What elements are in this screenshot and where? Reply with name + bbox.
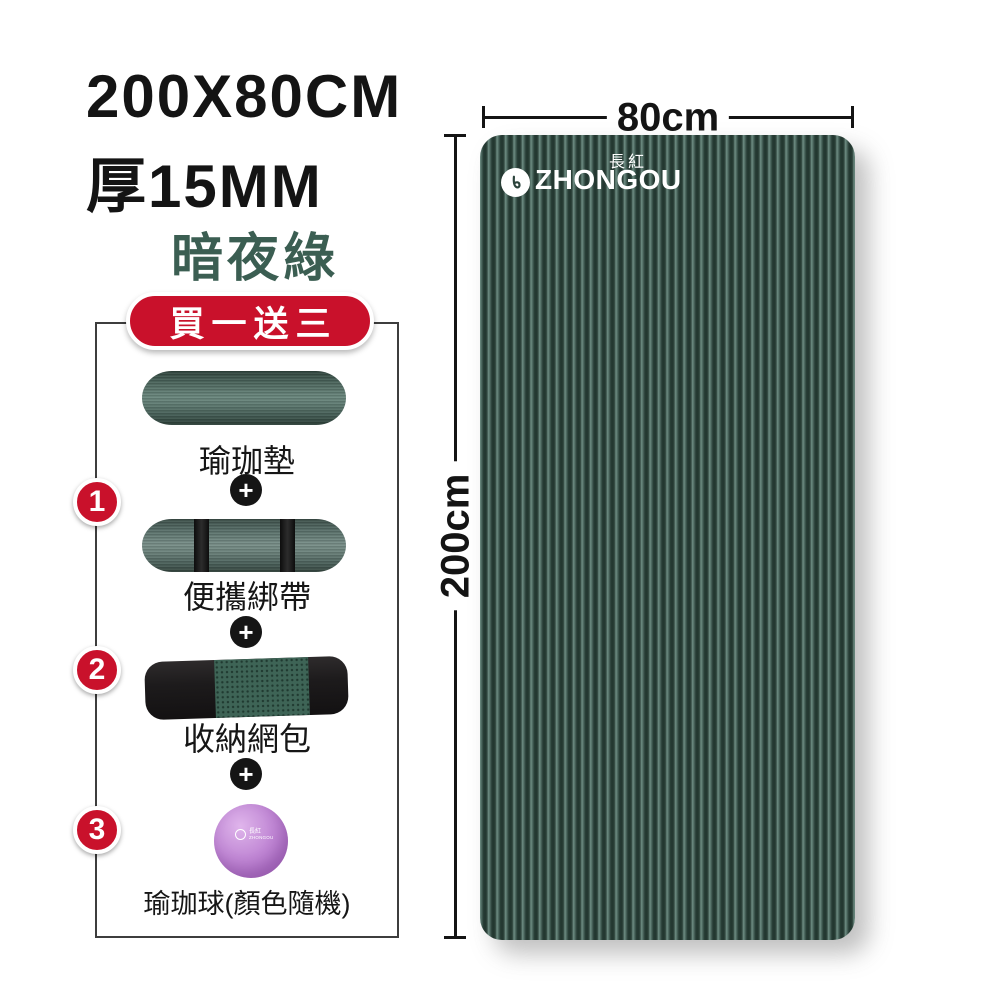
- number-badge-1: 1: [73, 478, 121, 526]
- color-name-title: 暗夜綠: [105, 216, 405, 291]
- plus-icon: +: [230, 758, 262, 790]
- strap: [280, 519, 295, 572]
- rolled-mat-image: [142, 371, 346, 425]
- promo-badge: 買一送三: [126, 292, 374, 350]
- height-dimension-label: 200cm: [434, 462, 479, 611]
- strapped-mat-image: [142, 519, 346, 572]
- ball-brand-logo: 長紅 ZHONGOU: [235, 829, 273, 841]
- brand-name-en: ZHONGOU: [249, 836, 273, 841]
- thickness-title: 厚15MM: [86, 138, 323, 225]
- item-label-carry-strap: 便攜綁帶: [95, 572, 399, 618]
- product-image: 200X80CM 厚15MM 暗夜綠 買一送三 瑜珈墊 + 便攜綁帶 + 收納網…: [0, 0, 1000, 1000]
- number-badge-2: 2: [73, 646, 121, 694]
- mesh-bag-image: [144, 656, 349, 720]
- brand-logo-icon: [501, 168, 530, 197]
- yoga-mat-image: [480, 135, 855, 940]
- mesh-panel: [214, 657, 310, 718]
- plus-icon: +: [230, 474, 262, 506]
- number-badge-3: 3: [73, 806, 121, 854]
- width-dimension-tick: [851, 106, 854, 128]
- brand-glyph: [506, 173, 526, 193]
- strap: [194, 519, 209, 572]
- item-label-yoga-ball: 瑜珈球(顏色隨機): [95, 882, 399, 921]
- height-dimension-tick: [444, 134, 466, 137]
- width-dimension-tick: [482, 106, 485, 128]
- plus-icon: +: [230, 616, 262, 648]
- brand-name-en: ZHONGOU: [535, 164, 682, 196]
- item-label-mesh-bag: 收納網包: [95, 714, 399, 760]
- width-dimension-label: 80cm: [607, 96, 729, 141]
- size-title: 200X80CM: [86, 62, 402, 131]
- yoga-ball-image: [214, 804, 288, 878]
- brand-logo-icon: [235, 829, 246, 840]
- height-dimension-tick: [444, 936, 466, 939]
